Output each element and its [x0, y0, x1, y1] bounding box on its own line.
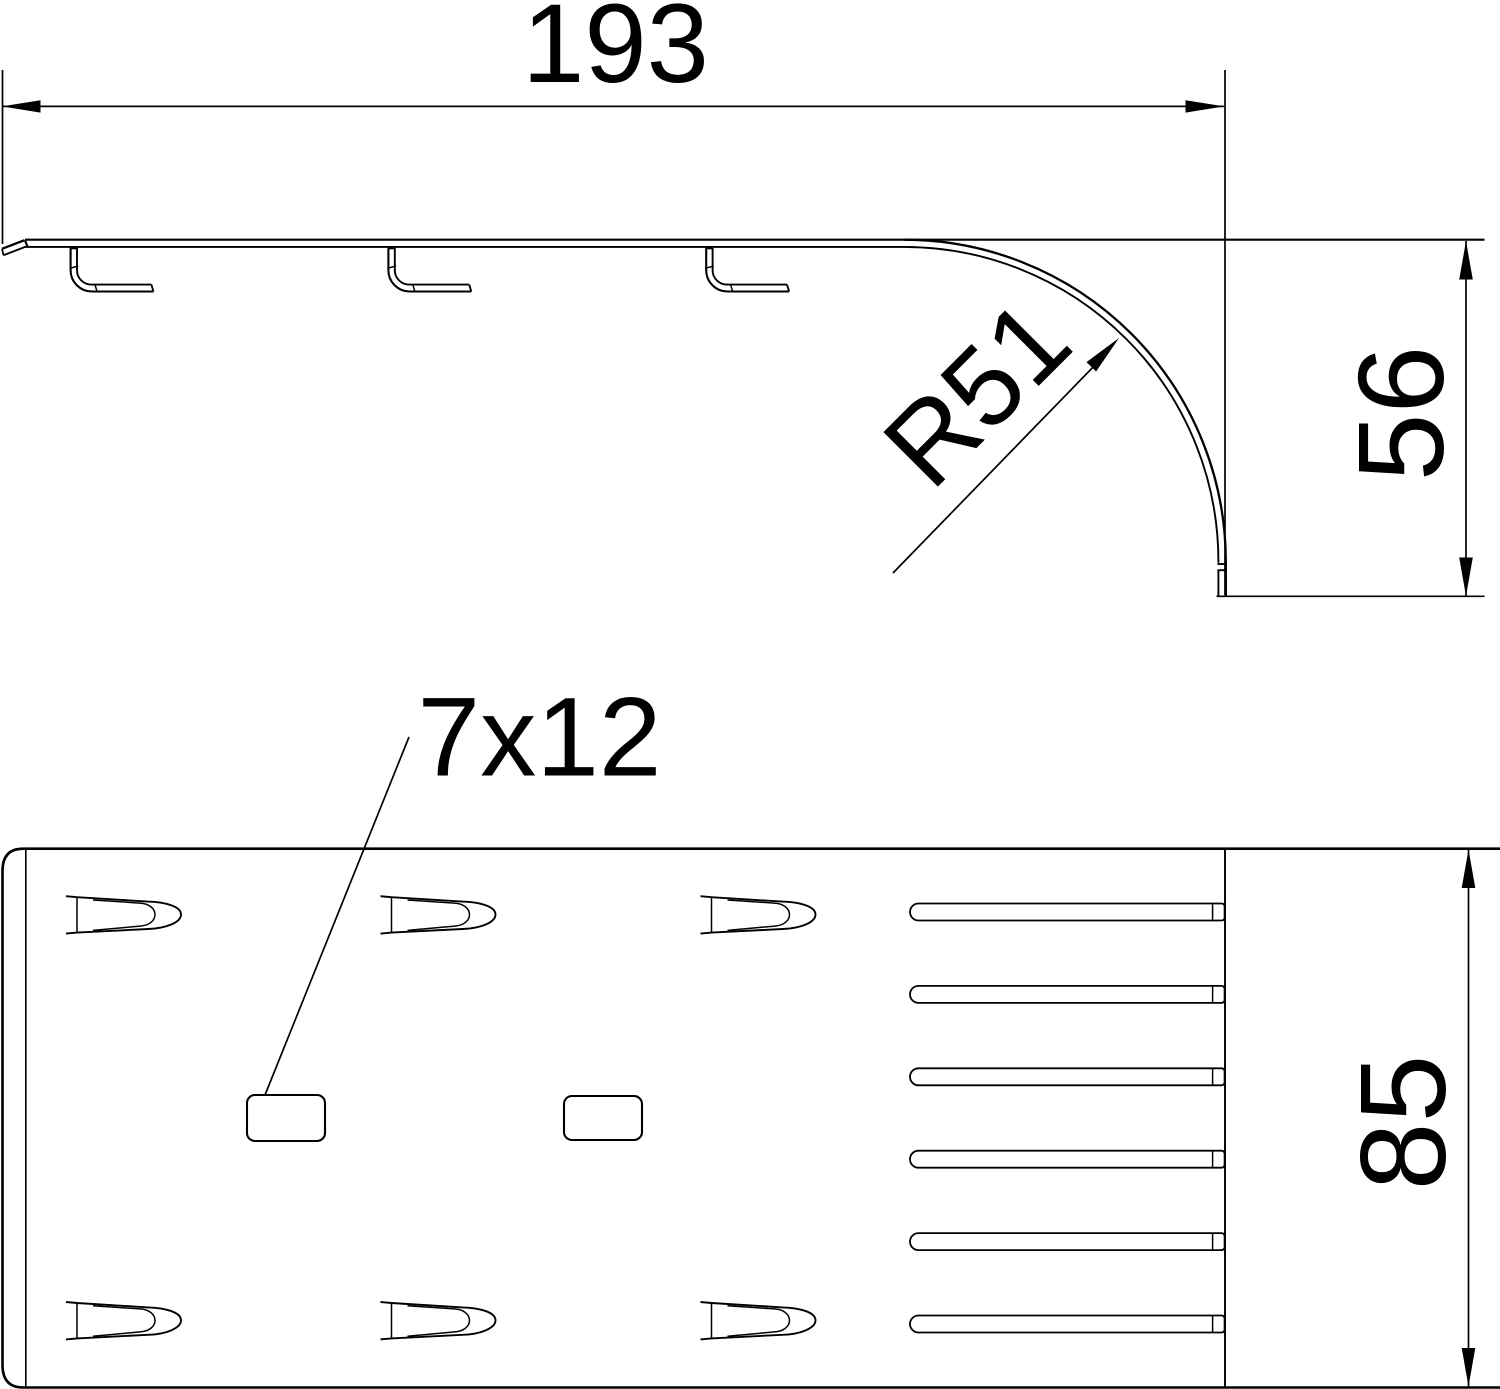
svg-text:56: 56 — [1333, 346, 1469, 482]
svg-text:7x12: 7x12 — [418, 674, 662, 800]
svg-text:R51: R51 — [860, 276, 1094, 510]
svg-text:193: 193 — [522, 0, 709, 106]
svg-text:85: 85 — [1335, 1055, 1471, 1191]
